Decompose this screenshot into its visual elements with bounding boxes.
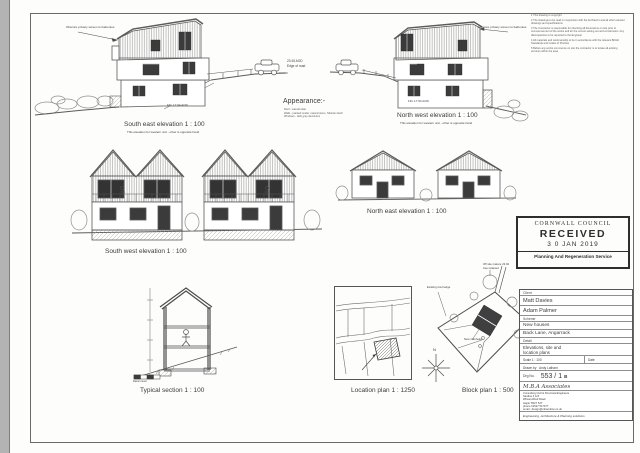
general-notes: 1 This drawing is copyright 2 The drawin… [531,14,627,55]
scale-cell: Scale 1 : 100 [520,356,585,363]
appearance-heading: Appearance:- [283,98,325,106]
bushes [494,100,528,121]
north-east-elevation-drawing [338,146,516,210]
title-location-plan: Location plan 1 : 1250 [351,387,415,394]
road-level-se-2: Edge of road [287,65,305,69]
note-line: 3 The Contractor is responsible for chec… [531,27,627,36]
title-block: Client Matt Davies Adam Palmer Scheme Ne… [519,289,633,421]
stamp-service: Planning And Regeneration Service [518,251,628,259]
annotation-manholes: New manholes [464,338,483,341]
detail-line-2: location plans [523,350,632,356]
datum-scale-bar [134,375,160,379]
south-west-elevation-drawing [72,146,322,248]
title-south-west-elevation: South west elevation 1 : 100 [105,248,187,255]
note-line: 1 This drawing is copyright [531,14,627,17]
title-typical-section: Typical section 1 : 100 [140,387,204,394]
typical-section-drawing [132,280,242,388]
drawnby-label: Drawn by [523,366,536,370]
title-south-east-elevation: South east elevation 1 : 100 [124,121,205,128]
stamp-received: RECEIVED [518,228,628,240]
note-line: 2 The drawings to be read in conjunction… [531,19,627,25]
retaining-wall [110,96,121,107]
house-block [90,150,296,240]
note-line: 4 All materials and workmanship to be in… [531,39,627,45]
dim-line [147,288,153,372]
figure [182,330,190,346]
ground-line [134,347,237,379]
scheme-line-1: New houses [520,322,632,330]
title-north-west-elevation: North west elevation 1 : 100 [397,112,478,119]
ffl-label-se: FFL 17.94 AOD [167,104,188,107]
stamp-date: 3 0 JAN 2019 [518,241,628,248]
note-line: 5 Before any works commence on site the … [531,47,627,53]
scheme-line-2: Back Lane, Angarrack [520,330,632,338]
appearance-lines: Roof - natural slate Walls - painted ren… [284,108,379,119]
subtitle-south-east-elevation: This elevation for western unit - other … [127,131,199,134]
drg-revision: B [564,374,567,379]
privacy-note-nw: Obscure privacy screen to balconies [478,26,533,29]
house-block [350,151,502,198]
site-outline [362,338,400,370]
annotation-hedge: Existing low hedge [427,286,450,289]
subtitle-north-west-elevation: This elevation for western unit - other … [400,122,472,125]
scan-edge-strip [0,0,10,453]
drg-number: 553 / 1 [541,373,562,380]
title-block-plan: Block plan 1 : 500 [462,387,514,394]
drawnby-value: Andy Latham [539,366,558,370]
title-north-east-elevation: North east elevation 1 : 100 [367,208,447,215]
stair-handrail [207,69,253,80]
privacy-note-se: Obscure privacy screen to balconies [66,26,128,29]
stamp-council-name: CORNWALL COUNCIL [518,221,628,227]
car-icon [255,60,279,75]
map-roads [336,298,410,376]
north-compass-icon [422,354,450,382]
location-plan-drawing [334,286,412,380]
client-name-2: Adam Palmer [520,306,632,316]
ffl-label-nw: FFL 17.94 AOD [408,100,429,103]
buildings [472,305,502,336]
council-received-stamp: CORNWALL COUNCIL RECEIVED 3 0 JAN 2019 P… [516,216,630,269]
firm-line: email : design@mbaonline.co.uk [523,408,632,411]
appearance-line: Windows - dark grey aluminium [284,115,379,118]
date-cell: Date [585,356,632,363]
firm-tagline: Engineering, Architecture & Planning sol… [520,412,632,420]
firm-name: M.B.A Associates [520,382,632,391]
client-name-1: Matt Davies [520,296,632,306]
drg-label: Drg No. [523,374,535,378]
drawing-sheet: Obscure privacy screen to balconies FFL … [0,0,640,453]
datum-label: Datum level [133,381,147,384]
block-plan-north-label: N [433,348,436,353]
privacy-screen-arrow [78,32,117,42]
annotation-tree-2: tree retained [483,267,499,270]
